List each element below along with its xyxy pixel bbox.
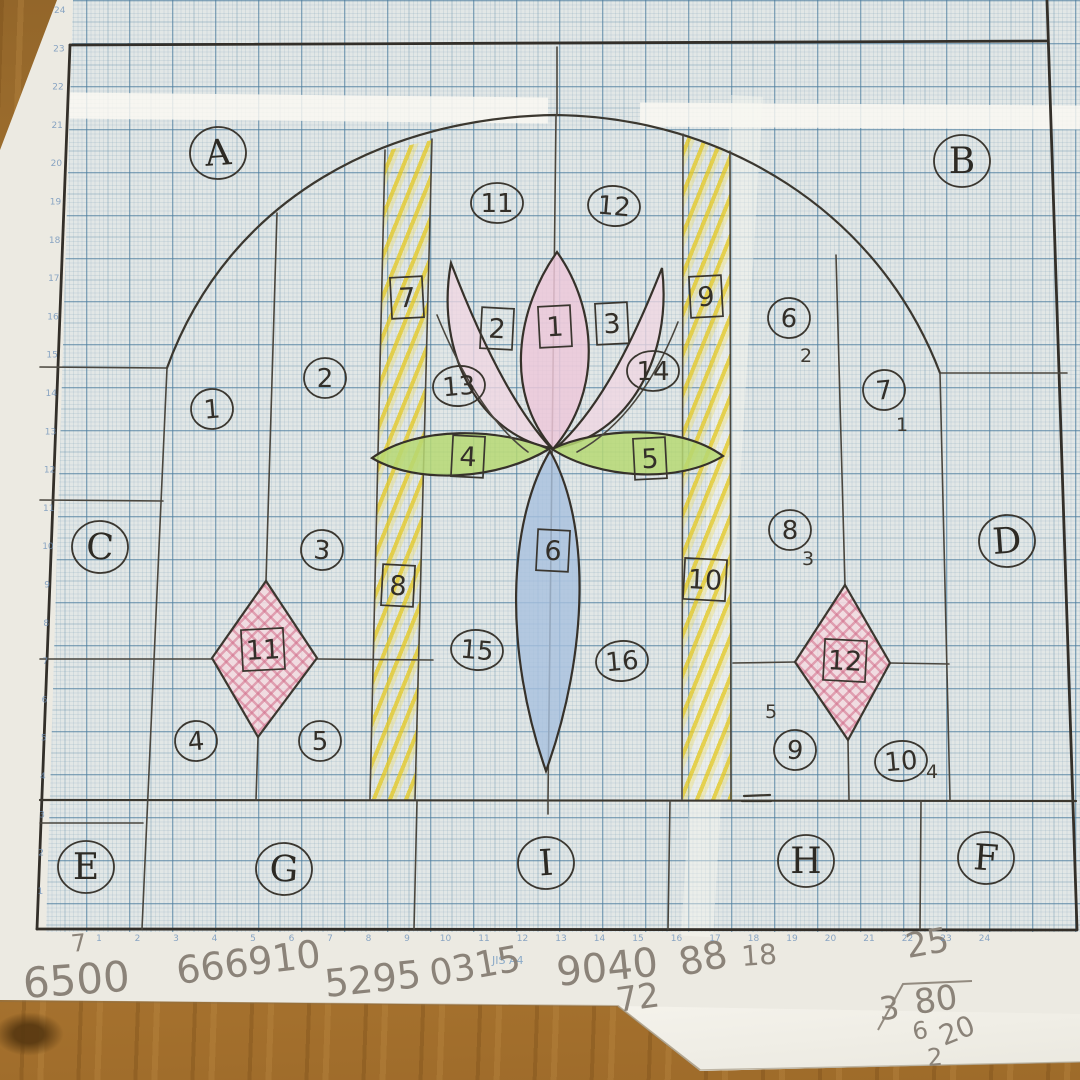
left-margin-number: 17 bbox=[48, 274, 59, 284]
boxed-number-text: 10 bbox=[687, 564, 723, 597]
bottom-margin-number: 20 bbox=[825, 934, 837, 944]
circled-number-text: 5 bbox=[312, 727, 329, 757]
panel-label-h: H bbox=[778, 835, 834, 887]
bottom-margin-number: 8 bbox=[366, 934, 372, 944]
boxed-number-11: 11 bbox=[241, 628, 285, 671]
panel-label-text: B bbox=[949, 141, 975, 182]
panel-label-e: E bbox=[58, 841, 114, 893]
bottom-margin-number: 21 bbox=[863, 934, 874, 944]
circled-number-text: 2 bbox=[317, 364, 334, 394]
circled-number-text: 1 bbox=[203, 394, 222, 425]
circled-number-text: 15 bbox=[459, 635, 495, 668]
circled-number-16: 16 bbox=[594, 639, 649, 683]
bottom-margin-number: 14 bbox=[594, 934, 606, 944]
left-margin-number: 23 bbox=[53, 44, 64, 54]
left-margin-number: 22 bbox=[52, 83, 63, 93]
handwritten-calculation: 7 bbox=[70, 929, 88, 958]
left-margin-number: 19 bbox=[50, 198, 62, 208]
left-margin-number: 5 bbox=[41, 734, 47, 744]
bottom-margin-number: 4 bbox=[212, 934, 218, 944]
panel-label-g: G bbox=[254, 841, 313, 897]
bottom-margin-number: 19 bbox=[786, 934, 798, 944]
bottom-margin-number: 15 bbox=[632, 934, 643, 944]
boxed-number-text: 3 bbox=[603, 309, 622, 341]
boxed-number-text: 1 bbox=[546, 312, 565, 344]
pencil-drawing: JIS A4 ABCDEGIHF123456789101112131415161… bbox=[0, 0, 1080, 1080]
left-margin-number: 10 bbox=[42, 542, 54, 552]
mullion-left-inner bbox=[256, 213, 277, 800]
double-tick-mark bbox=[742, 795, 771, 801]
bottom-margin-number: 18 bbox=[748, 934, 760, 944]
panel-label-f: F bbox=[956, 830, 1015, 886]
sheet-edge-shadow bbox=[0, 1001, 700, 1070]
boxed-number-7: 7 bbox=[390, 276, 424, 319]
bottom-margin-number: 1 bbox=[96, 934, 102, 944]
left-margin-number: 16 bbox=[47, 312, 59, 322]
bottom-margin-number: 23 bbox=[940, 934, 951, 944]
boxed-number-text: 8 bbox=[389, 571, 408, 603]
circled-number-7: 7 bbox=[861, 368, 906, 412]
bottom-margin-number: 16 bbox=[671, 934, 683, 944]
panel-label-text: C bbox=[85, 526, 115, 569]
boxed-number-text: 6 bbox=[544, 536, 563, 568]
bottom-margin-number: 24 bbox=[979, 934, 991, 944]
circled-number-2: 2 bbox=[304, 358, 346, 398]
boxed-number-9: 9 bbox=[689, 275, 723, 318]
handwritten-calculation: 72 bbox=[614, 975, 662, 1021]
left-margin-number: 24 bbox=[54, 6, 66, 16]
circled-number-6: 6 bbox=[766, 296, 811, 340]
lotus-petal-bottom-blue bbox=[516, 451, 579, 771]
circled-number-4: 4 bbox=[173, 719, 218, 763]
bottom-margin-number: 22 bbox=[902, 934, 913, 944]
circled-number-text: 12 bbox=[596, 191, 632, 224]
panel-label-text: E bbox=[73, 847, 99, 888]
left-margin-number: 15 bbox=[46, 351, 57, 361]
left-margin-number: 13 bbox=[45, 427, 56, 437]
circled-number-9: 9 bbox=[772, 728, 817, 772]
left-margin-number: 4 bbox=[40, 772, 46, 782]
panel-label-c: C bbox=[70, 519, 129, 575]
circled-number-text: 16 bbox=[604, 646, 640, 679]
photo-stained-glass-pattern: JIS A4 ABCDEGIHF123456789101112131415161… bbox=[0, 0, 1080, 1080]
pencil-note: 5 bbox=[765, 701, 777, 723]
handwritten-calculation: 0315 bbox=[426, 939, 523, 995]
boxed-number-text: 9 bbox=[697, 282, 716, 314]
bottom-margin-number: 13 bbox=[555, 934, 566, 944]
left-margin-number: 12 bbox=[44, 466, 55, 476]
boxed-number-text: 2 bbox=[488, 314, 507, 346]
pencil-note: 2 bbox=[800, 345, 812, 367]
left-margin-number: 20 bbox=[51, 159, 63, 169]
left-margin-number: 3 bbox=[39, 810, 45, 820]
panel-label-d: D bbox=[977, 513, 1036, 569]
bottom-band-dividers bbox=[414, 801, 921, 929]
frame-left bbox=[37, 45, 70, 929]
boxed-number-text: 7 bbox=[398, 283, 417, 315]
left-margin-number: 14 bbox=[46, 389, 58, 399]
panel-label-text: D bbox=[991, 520, 1023, 563]
panel-label-text: I bbox=[538, 843, 555, 885]
bottom-margin-number: 9 bbox=[404, 934, 410, 944]
fold-edge bbox=[618, 1006, 1080, 1070]
circled-number-1: 1 bbox=[189, 387, 234, 431]
left-margin-number: 9 bbox=[44, 581, 50, 591]
handwritten-calculation: 6500 bbox=[21, 952, 131, 1008]
circled-number-5: 5 bbox=[299, 721, 341, 761]
panel-label-text: H bbox=[790, 841, 821, 882]
bottom-margin-number: 11 bbox=[478, 934, 489, 944]
frame-top bbox=[70, 41, 1047, 45]
circled-number-text: 3 bbox=[312, 535, 331, 566]
left-margin-number: 6 bbox=[42, 695, 48, 705]
handwritten-calculation: 3 bbox=[877, 988, 901, 1028]
circled-number-12: 12 bbox=[586, 184, 641, 228]
boxed-number-text: 4 bbox=[459, 442, 478, 474]
bottom-margin-number: 3 bbox=[173, 934, 179, 944]
mullion-left bbox=[142, 368, 167, 929]
left-margin-number: 21 bbox=[51, 121, 62, 131]
bottom-margin-number: 7 bbox=[327, 934, 333, 944]
left-margin-number: 18 bbox=[49, 236, 61, 246]
handwritten-calculation: 5295 bbox=[322, 952, 423, 1006]
panel-label-text: G bbox=[268, 848, 300, 891]
pencil-note: 3 bbox=[802, 548, 814, 570]
circled-number-text: 13 bbox=[441, 371, 477, 404]
lotus-petal-center bbox=[521, 252, 589, 449]
left-margin-number: 8 bbox=[43, 619, 49, 629]
circled-number-15: 15 bbox=[449, 628, 504, 672]
circled-number-text: 14 bbox=[636, 357, 669, 387]
circled-number-text: 10 bbox=[883, 746, 919, 779]
handwritten-calculation: 2 bbox=[926, 1043, 944, 1072]
boxed-number-10: 10 bbox=[683, 558, 727, 601]
circled-number-11: 11 bbox=[471, 183, 523, 223]
boxed-number-12: 12 bbox=[823, 639, 867, 682]
circled-number-text: 11 bbox=[480, 189, 513, 219]
left-margin-number: 2 bbox=[38, 849, 44, 859]
handwritten-calculation: 666910 bbox=[174, 932, 323, 993]
circled-number-text: 6 bbox=[779, 303, 798, 334]
bottom-margin-number: 2 bbox=[135, 934, 141, 944]
circled-number-text: 4 bbox=[187, 726, 206, 757]
handwritten-calculation: 88 bbox=[675, 932, 731, 985]
panel-label-i: I bbox=[516, 835, 575, 891]
boxed-number-3: 3 bbox=[595, 302, 629, 345]
panel-label-b: B bbox=[934, 135, 990, 187]
boxed-number-text: 11 bbox=[245, 634, 281, 667]
boxed-number-text: 5 bbox=[641, 444, 660, 476]
boxed-number-text: 12 bbox=[827, 645, 863, 678]
bottom-margin-number: 12 bbox=[517, 934, 528, 944]
boxed-number-8: 8 bbox=[381, 564, 415, 607]
mullion-right-inner bbox=[836, 255, 849, 800]
circled-number-text: 8 bbox=[782, 516, 799, 546]
left-margin-number: 1 bbox=[37, 887, 43, 897]
bottom-margin-number: 6 bbox=[289, 934, 295, 944]
left-margin-number: 11 bbox=[43, 504, 54, 514]
circled-number-text: 9 bbox=[785, 735, 804, 766]
circled-number-3: 3 bbox=[299, 528, 344, 572]
bottom-margin-number: 10 bbox=[440, 934, 452, 944]
mullion-right bbox=[940, 373, 950, 800]
frame-right bbox=[1047, 0, 1077, 929]
left-margin-number: 7 bbox=[43, 657, 49, 667]
pencil-note: 1 bbox=[896, 414, 908, 436]
circled-number-10: 10 bbox=[873, 739, 928, 783]
pencil-note: 4 bbox=[926, 761, 938, 783]
bottom-margin-number: 17 bbox=[709, 934, 720, 944]
panel-label-text: F bbox=[972, 837, 1000, 880]
panel-label-text: A bbox=[203, 132, 234, 175]
circled-number-text: 7 bbox=[875, 375, 894, 406]
panel-label-a: A bbox=[188, 125, 247, 181]
bottom-margin-number: 5 bbox=[250, 934, 256, 944]
circled-number-8: 8 bbox=[769, 510, 811, 550]
